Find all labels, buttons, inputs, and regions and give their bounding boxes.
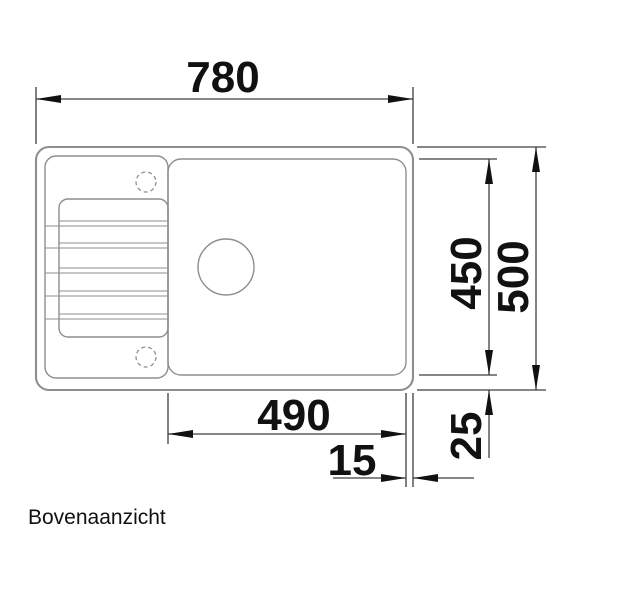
arrow-up-icon xyxy=(485,159,493,184)
arrow-up-icon xyxy=(485,390,493,415)
arrow-left-icon xyxy=(168,430,193,438)
technical-drawing-sink-top-view: 780 450 500 490 xyxy=(0,0,626,599)
drawing-caption: Bovenaanzicht xyxy=(28,506,166,529)
dimension-label-450: 450 xyxy=(442,236,491,309)
dimension-label-780: 780 xyxy=(186,53,259,102)
arrow-down-icon xyxy=(532,365,540,390)
arrow-right-icon xyxy=(381,474,406,482)
arrow-right-icon xyxy=(388,95,413,103)
drain-hole xyxy=(198,239,254,295)
dimension-overall-width: 780 xyxy=(36,53,413,144)
dimension-label-15: 15 xyxy=(328,436,377,485)
sink-top-view xyxy=(36,147,413,390)
sink-inner-rim-drainboard xyxy=(45,156,168,378)
arrow-left-icon xyxy=(413,474,438,482)
drawing-svg: 780 450 500 490 xyxy=(0,0,626,599)
dimension-label-25: 25 xyxy=(442,412,491,461)
arrow-up-icon xyxy=(532,147,540,172)
arrow-right-icon xyxy=(381,430,406,438)
tap-hole-top-icon xyxy=(136,172,156,192)
dimension-bottom-rim-offset: 25 xyxy=(442,390,493,460)
tap-hole-bottom-icon xyxy=(136,347,156,367)
arrow-down-icon xyxy=(485,350,493,375)
arrow-left-icon xyxy=(36,95,61,103)
drainboard-ridges xyxy=(45,221,168,319)
dimension-label-500: 500 xyxy=(489,240,538,313)
dimension-label-490: 490 xyxy=(257,391,330,440)
dimension-bowl-depth: 450 xyxy=(419,159,497,375)
bowl-outline xyxy=(168,159,406,375)
